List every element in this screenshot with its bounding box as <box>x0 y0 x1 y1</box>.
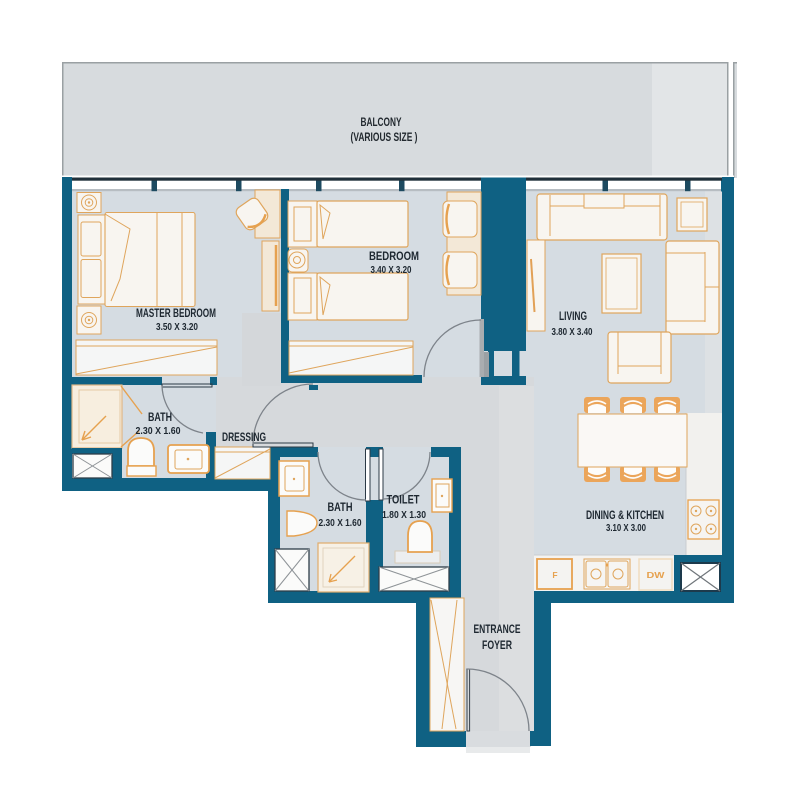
svg-text:3.40 X 3.20: 3.40 X 3.20 <box>371 265 412 276</box>
svg-text:FOYER: FOYER <box>482 640 513 652</box>
svg-text:DW: DW <box>647 570 666 580</box>
svg-text:DINING & KITCHEN: DINING & KITCHEN <box>586 510 664 522</box>
svg-text:(VARIOUS SIZE ): (VARIOUS SIZE ) <box>351 130 418 144</box>
svg-text:DRESSING: DRESSING <box>222 432 266 444</box>
svg-text:1.80 X 1.30: 1.80 X 1.30 <box>382 510 426 521</box>
svg-text:3.10 X 3.00: 3.10 X 3.00 <box>606 523 646 534</box>
svg-text:LIVING: LIVING <box>559 311 587 323</box>
svg-text:2.30 X 1.60: 2.30 X 1.60 <box>136 426 181 437</box>
svg-text:3.80 X 3.40: 3.80 X 3.40 <box>552 327 593 338</box>
svg-text:BATH: BATH <box>328 502 353 514</box>
svg-text:BATH: BATH <box>148 412 172 424</box>
svg-text:MASTER BEDROOM: MASTER BEDROOM <box>136 308 216 320</box>
svg-text:3.50 X 3.20: 3.50 X 3.20 <box>156 322 198 333</box>
svg-text:BALCONY: BALCONY <box>361 115 402 129</box>
svg-text:TOILET: TOILET <box>387 495 420 507</box>
svg-text:ENTRANCE: ENTRANCE <box>474 624 521 636</box>
svg-text:2.30 X 1.60: 2.30 X 1.60 <box>319 518 362 529</box>
svg-text:F: F <box>552 570 557 580</box>
svg-text:BEDROOM: BEDROOM <box>369 251 419 263</box>
